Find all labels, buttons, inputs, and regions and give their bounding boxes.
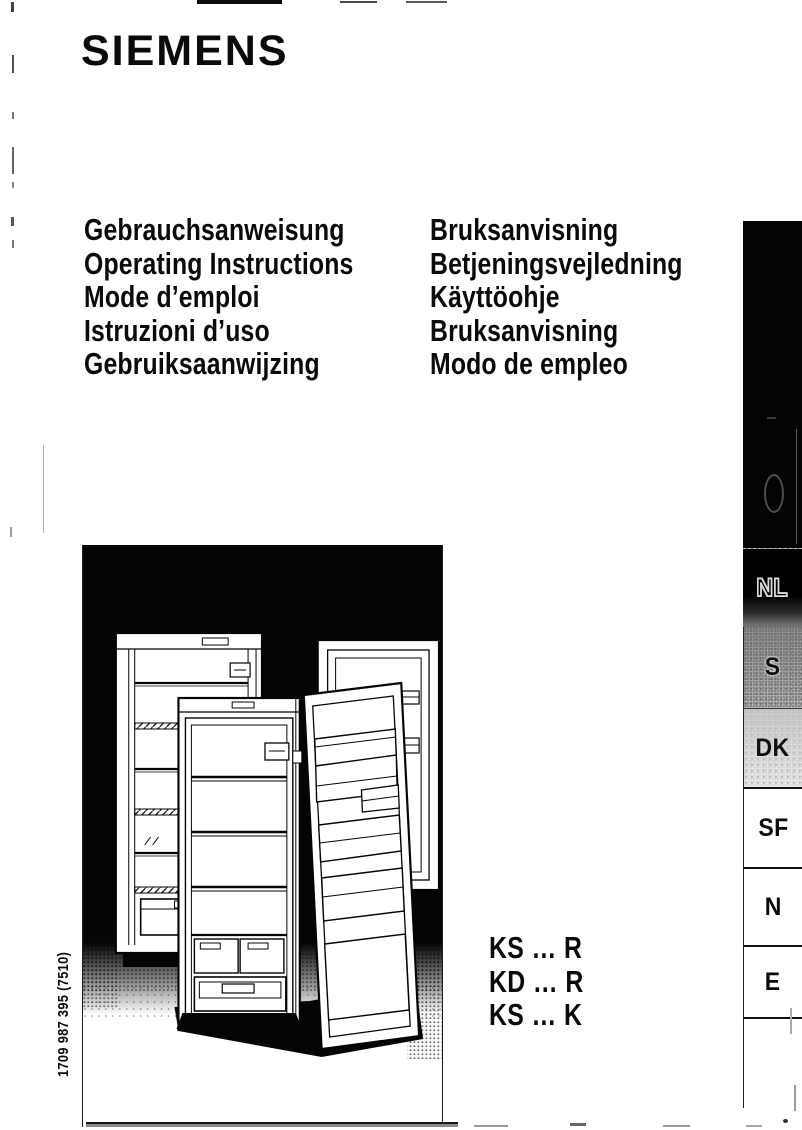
language-tab-e: E [743, 945, 802, 1017]
scan-mark [474, 1125, 508, 1127]
faint-oval-glyph [764, 474, 784, 513]
language-tab-column: NL S DK SF N E [743, 221, 802, 1108]
scan-mark [746, 1125, 762, 1127]
scan-mark [796, 429, 797, 544]
scan-mark [794, 1085, 796, 1111]
title-finnish: Käyttöohje [430, 280, 683, 314]
title-french: Mode d’emploi [84, 280, 353, 314]
scan-mark [12, 147, 14, 174]
model-line: KS … R [489, 931, 584, 965]
scan-mark [43, 445, 44, 533]
title-italian: Istruzioni d’uso [84, 314, 353, 348]
scan-mark [197, 0, 282, 4]
language-tab-n: N [743, 867, 802, 945]
scan-mark [10, 527, 12, 537]
language-tab-block [743, 221, 802, 548]
scan-mark [790, 1008, 792, 1034]
scan-mark [11, 2, 14, 12]
scan-mark [11, 217, 14, 226]
three-refrigerators-line-art [83, 545, 442, 1127]
scan-mark [783, 1119, 788, 1123]
refrigerator-illustration [82, 545, 443, 1127]
title-danish: Betjeningsvejledning [430, 247, 683, 281]
model-list: KS … R KD … R KS … K [489, 931, 584, 1032]
scan-mark [86, 1124, 458, 1127]
scan-mark [570, 1123, 586, 1126]
scan-mark [767, 417, 776, 419]
title-norwegian: Bruksanvisning [430, 314, 683, 348]
title-dutch: Gebruiksaanwijzing [84, 347, 353, 381]
title-english: Operating Instructions [84, 247, 353, 281]
title-german: Gebrauchsanweisung [84, 213, 353, 247]
manual-cover-page: SIEMENS Gebrauchsanweisung Operating Ins… [0, 0, 802, 1130]
scan-mark [12, 182, 14, 188]
scan-mark [663, 1125, 690, 1127]
language-tab-nl: NL [743, 548, 802, 627]
model-line: KS … K [489, 998, 584, 1032]
part-number: 1709 987 395 (7510) [56, 952, 72, 1077]
model-line: KD … R [489, 965, 584, 999]
title-column-right: Bruksanvisning Betjeningsvejledning Käyt… [430, 213, 683, 381]
title-spanish: Modo de empleo [430, 347, 683, 381]
brand-logo: SIEMENS [81, 27, 289, 76]
language-tab-sf: SF [743, 787, 802, 867]
title-column-left: Gebrauchsanweisung Operating Instruction… [84, 213, 353, 381]
scan-mark [340, 1, 377, 3]
scan-mark [12, 112, 14, 119]
language-tab-dk: DK [743, 708, 802, 787]
scan-mark [406, 1, 447, 3]
scan-mark [12, 55, 14, 73]
title-swedish: Bruksanvisning [430, 213, 683, 247]
language-tab-s: S [743, 627, 802, 708]
scan-mark [12, 240, 14, 248]
